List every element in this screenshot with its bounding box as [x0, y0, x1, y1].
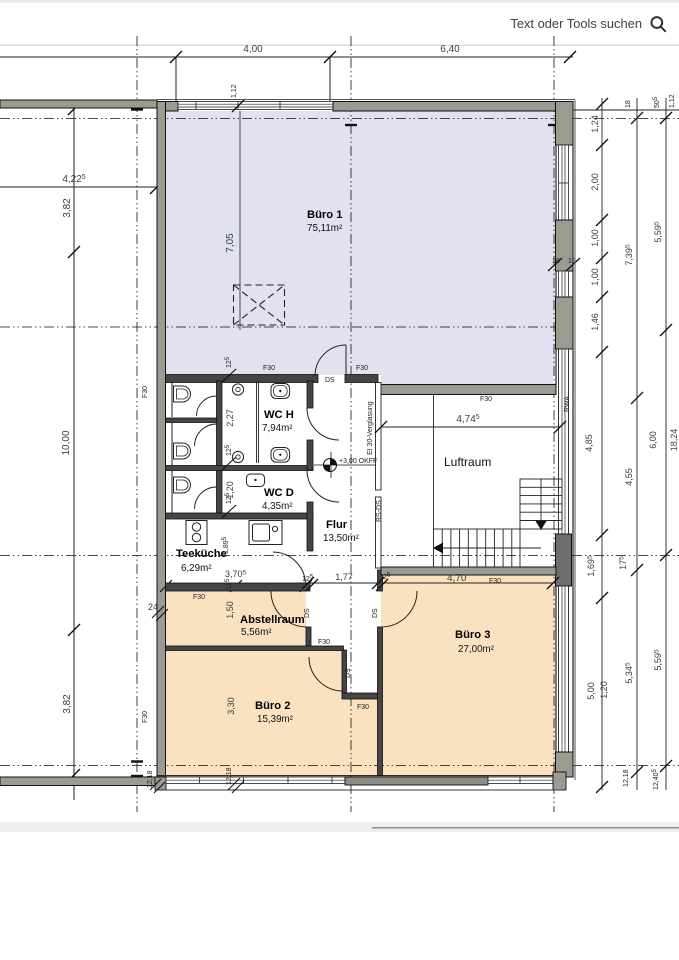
svg-text:+3,00 OKFF: +3,00 OKFF [339, 458, 377, 465]
svg-text:12,18: 12,18 [623, 769, 630, 787]
svg-text:3,82: 3,82 [62, 198, 73, 218]
svg-text:RWA: RWA [564, 396, 571, 412]
svg-text:2,27: 2,27 [225, 409, 235, 427]
svg-text:F30: F30 [142, 386, 149, 398]
svg-text:6,00: 6,00 [648, 431, 658, 449]
svg-text:13,50m²: 13,50m² [323, 533, 360, 544]
svg-text:18,24: 18,24 [669, 429, 679, 452]
svg-text:Büro 1: Büro 1 [307, 209, 342, 221]
svg-text:F30: F30 [142, 711, 149, 723]
svg-text:18: 18 [625, 100, 632, 108]
svg-text:DS: DS [304, 608, 311, 618]
svg-text:12,18: 12,18 [147, 770, 154, 788]
svg-text:1,12: 1,12 [669, 94, 676, 108]
svg-text:F30: F30 [480, 396, 492, 403]
svg-text:RS-DS: RS-DS [376, 500, 383, 522]
svg-text:75,11m²: 75,11m² [307, 223, 343, 234]
svg-text:DS: DS [325, 377, 335, 384]
svg-text:7,94m²: 7,94m² [262, 423, 293, 434]
svg-text:27,00m²: 27,00m² [458, 644, 495, 655]
svg-text:WC D: WC D [264, 487, 294, 499]
svg-text:5,00: 5,00 [586, 682, 596, 700]
svg-text:F30: F30 [356, 365, 368, 372]
svg-text:1,00: 1,00 [590, 229, 600, 247]
svg-text:Abstellraum: Abstellraum [240, 614, 305, 626]
svg-text:5,56m²: 5,56m² [241, 627, 272, 638]
svg-text:F30: F30 [357, 704, 369, 711]
svg-text:12,18: 12,18 [226, 767, 233, 785]
svg-text:4,55: 4,55 [624, 468, 634, 486]
svg-text:1,24: 1,24 [590, 115, 600, 133]
svg-text:4,70: 4,70 [447, 573, 467, 584]
svg-text:1,20: 1,20 [599, 681, 609, 699]
svg-text:F30: F30 [318, 639, 330, 646]
svg-text:7,05: 7,05 [225, 233, 236, 253]
svg-text:15,39m²: 15,39m² [257, 714, 294, 725]
svg-text:1,12: 1,12 [231, 84, 238, 98]
svg-text:Büro 3: Büro 3 [455, 629, 490, 641]
svg-text:Büro 2: Büro 2 [255, 700, 290, 712]
svg-text:6,40: 6,40 [440, 44, 460, 55]
svg-text:18: 18 [552, 258, 560, 265]
svg-text:F30: F30 [489, 578, 501, 585]
svg-text:EI 30-Verglasung: EI 30-Verglasung [367, 401, 374, 455]
svg-text:Teeküche: Teeküche [176, 548, 227, 560]
svg-text:F30: F30 [263, 365, 275, 372]
svg-text:DS: DS [372, 608, 379, 618]
svg-text:1,00: 1,00 [590, 268, 600, 286]
svg-text:1,46: 1,46 [590, 313, 600, 331]
svg-text:4,85: 4,85 [584, 434, 594, 452]
svg-text:2,00: 2,00 [590, 173, 600, 191]
svg-text:1,50: 1,50 [225, 601, 235, 619]
svg-text:4,00: 4,00 [243, 44, 263, 55]
svg-text:3,30: 3,30 [226, 697, 236, 715]
svg-text:1,77: 1,77 [335, 572, 353, 582]
svg-text:3,82: 3,82 [62, 694, 73, 714]
svg-text:4,35m²: 4,35m² [262, 501, 293, 512]
svg-text:DS: DS [345, 668, 352, 678]
svg-text:10,00: 10,00 [61, 430, 72, 455]
svg-text:6,29m²: 6,29m² [181, 563, 212, 574]
svg-text:Text oder Tools suchen: Text oder Tools suchen [510, 16, 642, 31]
svg-text:24: 24 [148, 602, 158, 612]
svg-text:F30: F30 [193, 594, 205, 601]
svg-text:WC H: WC H [264, 409, 294, 421]
svg-text:Flur: Flur [326, 519, 348, 531]
svg-text:Luftraum: Luftraum [444, 455, 491, 469]
